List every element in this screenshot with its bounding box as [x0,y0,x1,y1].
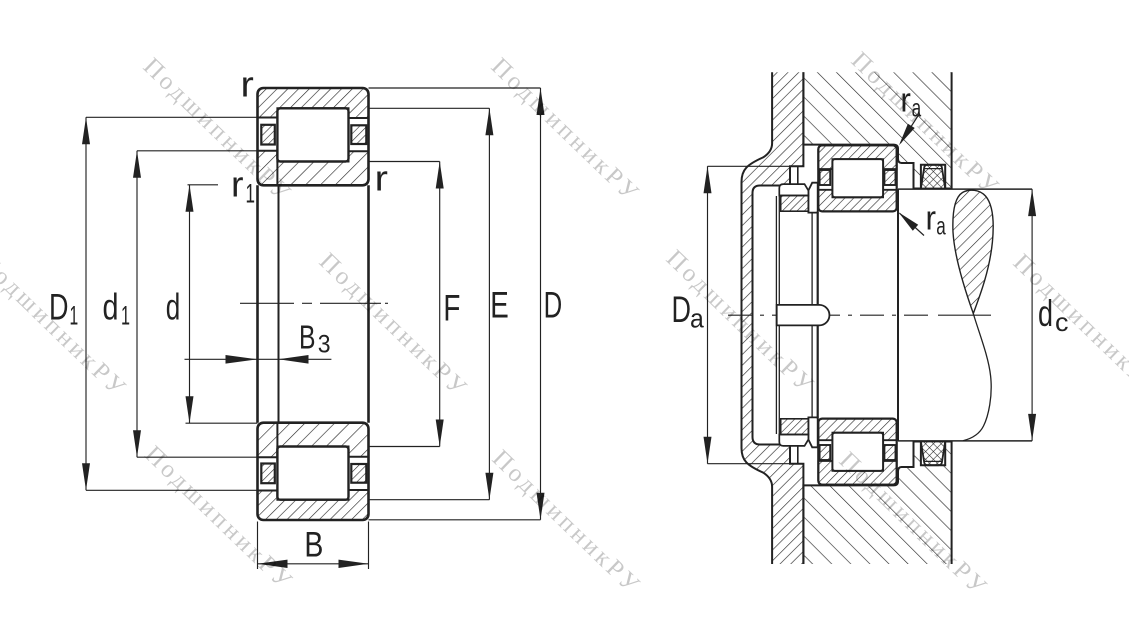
svg-text:B: B [304,526,323,565]
svg-text:1: 1 [121,301,130,331]
svg-text:3: 3 [318,331,331,359]
svg-text:F: F [443,288,460,329]
svg-text:a: a [690,304,705,334]
svg-text:d: d [103,287,119,328]
svg-text:d: d [166,287,181,328]
svg-text:B: B [299,319,316,356]
svg-text:D: D [672,289,692,330]
svg-text:r: r [926,200,937,238]
svg-text:D: D [544,285,563,326]
svg-text:r: r [241,64,254,105]
svg-text:E: E [490,285,509,326]
svg-text:a: a [936,213,946,241]
svg-text:r: r [375,158,388,199]
